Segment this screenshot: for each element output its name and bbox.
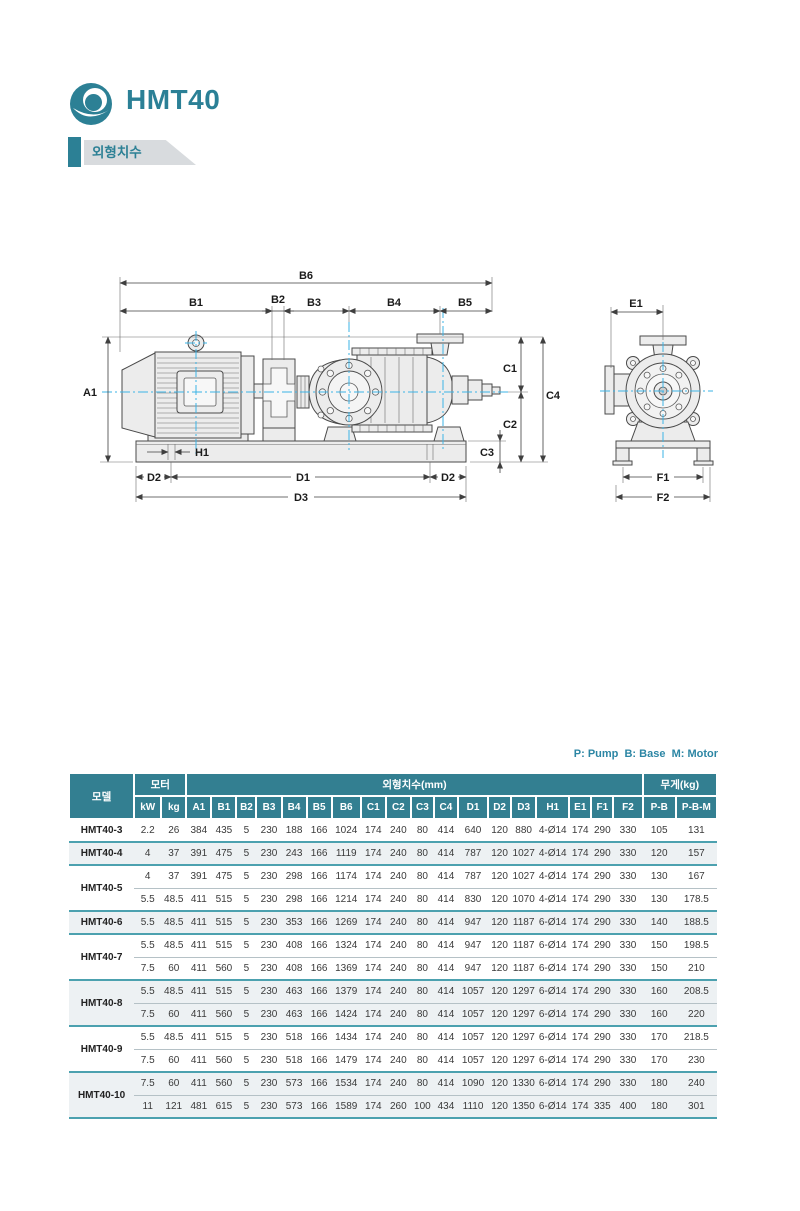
dim-label-f2: F2 bbox=[657, 492, 670, 504]
spec-cell: 391 bbox=[186, 842, 211, 865]
spec-cell: 414 bbox=[434, 934, 458, 957]
spec-cell: 5 bbox=[236, 934, 256, 957]
spec-cell: 166 bbox=[307, 911, 332, 934]
table-row: HMT40-5437391475523029816611741742408041… bbox=[69, 865, 717, 888]
dim-label-d3: D3 bbox=[294, 492, 308, 504]
spec-cell: 7.5 bbox=[134, 957, 161, 980]
spec-cell: 400 bbox=[613, 1095, 642, 1118]
spec-cell: 515 bbox=[211, 1026, 236, 1049]
spec-cell: 1090 bbox=[458, 1072, 488, 1095]
dim-label-h1: H1 bbox=[195, 447, 209, 459]
col-header: kg bbox=[161, 796, 186, 819]
spec-cell: 330 bbox=[613, 1072, 642, 1095]
table-legend: P: Pump B: Base M: Motor bbox=[68, 748, 718, 760]
spec-cell: 1534 bbox=[332, 1072, 361, 1095]
spec-cell: 1214 bbox=[332, 888, 361, 911]
spec-cell: 220 bbox=[676, 1003, 717, 1026]
spec-cell: 330 bbox=[613, 842, 642, 865]
spec-cell: 230 bbox=[256, 1072, 281, 1095]
spec-cell: 180 bbox=[643, 1095, 676, 1118]
spec-cell: 947 bbox=[458, 934, 488, 957]
spec-cell: 80 bbox=[411, 1072, 434, 1095]
spec-cell: 5 bbox=[236, 1003, 256, 1026]
spec-cell: 174 bbox=[361, 1003, 386, 1026]
dim-label-d2-right: D2 bbox=[441, 472, 455, 484]
spec-cell: 230 bbox=[256, 1049, 281, 1072]
spec-cell: 6-Ø14 bbox=[536, 957, 569, 980]
spec-cell: 174 bbox=[569, 888, 591, 911]
spec-cell: 80 bbox=[411, 957, 434, 980]
spec-cell: 1297 bbox=[511, 1003, 536, 1026]
spec-cell: 290 bbox=[591, 865, 613, 888]
model-cell: HMT40-3 bbox=[69, 819, 134, 842]
spec-cell: 6-Ø14 bbox=[536, 980, 569, 1003]
spec-cell: 174 bbox=[569, 980, 591, 1003]
col-header-motor: 모터 bbox=[134, 773, 186, 796]
spec-cell: 120 bbox=[643, 842, 676, 865]
spec-cell: 330 bbox=[613, 934, 642, 957]
table-row: 1112148161552305731661589174260100434111… bbox=[69, 1095, 717, 1118]
model-cell: HMT40-9 bbox=[69, 1026, 134, 1072]
spec-cell: 140 bbox=[643, 911, 676, 934]
spec-cell: 240 bbox=[386, 1003, 411, 1026]
spec-cell: 4 bbox=[134, 865, 161, 888]
spec-cell: 414 bbox=[434, 911, 458, 934]
spec-cell: 174 bbox=[569, 819, 591, 842]
spec-cell: 1057 bbox=[458, 1003, 488, 1026]
spec-cell: 188.5 bbox=[676, 911, 717, 934]
header-row-sub: kWkgA1B1B2B3B4B5B6C1C2C3C4D1D2D3H1E1F1F2… bbox=[69, 796, 717, 819]
spec-cell: 166 bbox=[307, 1049, 332, 1072]
spec-cell: 7.5 bbox=[134, 1049, 161, 1072]
spec-cell: 166 bbox=[307, 819, 332, 842]
spec-cell: 174 bbox=[361, 1049, 386, 1072]
spec-cell: 330 bbox=[613, 1026, 642, 1049]
spec-cell: 475 bbox=[211, 842, 236, 865]
spec-cell: 166 bbox=[307, 1003, 332, 1026]
dim-label-e1: E1 bbox=[629, 298, 642, 310]
spec-cell: 1024 bbox=[332, 819, 361, 842]
spec-cell: 60 bbox=[161, 1072, 186, 1095]
spec-cell: 5.5 bbox=[134, 911, 161, 934]
col-header: D3 bbox=[511, 796, 536, 819]
spec-cell: 166 bbox=[307, 934, 332, 957]
spec-cell: 174 bbox=[361, 934, 386, 957]
spec-cell: 120 bbox=[488, 888, 511, 911]
spec-cell: 5 bbox=[236, 1095, 256, 1118]
spec-cell: 157 bbox=[676, 842, 717, 865]
col-header: C4 bbox=[434, 796, 458, 819]
spec-cell: 48.5 bbox=[161, 1026, 186, 1049]
spec-cell: 166 bbox=[307, 980, 332, 1003]
model-cell: HMT40-4 bbox=[69, 842, 134, 865]
spec-cell: 1269 bbox=[332, 911, 361, 934]
spec-cell: 230 bbox=[256, 911, 281, 934]
spec-cell: 6-Ø14 bbox=[536, 1026, 569, 1049]
col-header-dims: 외형치수(mm) bbox=[186, 773, 642, 796]
dim-label-a1: A1 bbox=[83, 387, 97, 399]
col-header: kW bbox=[134, 796, 161, 819]
spec-cell: 167 bbox=[676, 865, 717, 888]
spec-cell: 475 bbox=[211, 865, 236, 888]
spec-cell: 290 bbox=[591, 957, 613, 980]
spec-cell: 174 bbox=[569, 1095, 591, 1118]
spec-cell: 6-Ø14 bbox=[536, 1095, 569, 1118]
col-header: B1 bbox=[211, 796, 236, 819]
spec-cell: 120 bbox=[488, 1003, 511, 1026]
model-cell: HMT40-7 bbox=[69, 934, 134, 980]
spec-cell: 166 bbox=[307, 1072, 332, 1095]
table-row: 7.56041156052304081661369174240804149471… bbox=[69, 957, 717, 980]
brand-logo-icon bbox=[68, 81, 114, 127]
spec-cell: 5 bbox=[236, 1049, 256, 1072]
coupling-guard bbox=[263, 359, 309, 441]
spec-cell: 411 bbox=[186, 1072, 211, 1095]
spec-cell: 166 bbox=[307, 842, 332, 865]
spec-cell: 80 bbox=[411, 1026, 434, 1049]
spec-cell: 105 bbox=[643, 819, 676, 842]
spec-cell: 787 bbox=[458, 865, 488, 888]
spec-cell: 166 bbox=[307, 957, 332, 980]
spec-cell: 830 bbox=[458, 888, 488, 911]
spec-cell: 230 bbox=[256, 1095, 281, 1118]
spec-cell: 120 bbox=[488, 865, 511, 888]
spec-cell: 198.5 bbox=[676, 934, 717, 957]
dim-label-b4: B4 bbox=[387, 297, 402, 309]
spec-cell: 1297 bbox=[511, 1049, 536, 1072]
spec-cell: 174 bbox=[361, 980, 386, 1003]
spec-cell: 230 bbox=[256, 957, 281, 980]
spec-cell: 80 bbox=[411, 911, 434, 934]
spec-cell: 178.5 bbox=[676, 888, 717, 911]
spec-cell: 560 bbox=[211, 1072, 236, 1095]
spec-cell: 290 bbox=[591, 842, 613, 865]
spec-cell: 481 bbox=[186, 1095, 211, 1118]
spec-cell: 11 bbox=[134, 1095, 161, 1118]
spec-cell: 174 bbox=[361, 1095, 386, 1118]
spec-cell: 947 bbox=[458, 911, 488, 934]
spec-cell: 330 bbox=[613, 865, 642, 888]
table-row: HMT40-4437391475523024316611191742408041… bbox=[69, 842, 717, 865]
col-header-weight: 무게(kg) bbox=[643, 773, 717, 796]
spec-cell: 174 bbox=[361, 842, 386, 865]
spec-cell: 5.5 bbox=[134, 980, 161, 1003]
spec-cell: 560 bbox=[211, 1003, 236, 1026]
dim-label-b1: B1 bbox=[189, 297, 203, 309]
discharge-flange bbox=[417, 334, 463, 343]
spec-cell: 515 bbox=[211, 888, 236, 911]
spec-cell: 6-Ø14 bbox=[536, 1049, 569, 1072]
spec-cell: 411 bbox=[186, 1003, 211, 1026]
spec-cell: 174 bbox=[569, 865, 591, 888]
spec-cell: 120 bbox=[488, 1049, 511, 1072]
spec-cell: 414 bbox=[434, 865, 458, 888]
spec-cell: 174 bbox=[361, 888, 386, 911]
spec-cell: 330 bbox=[613, 888, 642, 911]
spec-cell: 560 bbox=[211, 957, 236, 980]
spec-cell: 60 bbox=[161, 957, 186, 980]
spec-cell: 330 bbox=[613, 1049, 642, 1072]
spec-cell: 180 bbox=[643, 1072, 676, 1095]
spec-cell: 240 bbox=[676, 1072, 717, 1095]
spec-cell: 1324 bbox=[332, 934, 361, 957]
section-badge-bar bbox=[68, 137, 81, 167]
spec-cell: 560 bbox=[211, 1049, 236, 1072]
spec-cell: 1187 bbox=[511, 911, 536, 934]
spec-cell: 120 bbox=[488, 1095, 511, 1118]
spec-cell: 174 bbox=[569, 842, 591, 865]
spec-cell: 1297 bbox=[511, 1026, 536, 1049]
spec-cell: 174 bbox=[569, 1072, 591, 1095]
spec-cell: 298 bbox=[282, 865, 307, 888]
table-header: 모델모터외형치수(mm)무게(kg)kWkgA1B1B2B3B4B5B6C1C2… bbox=[69, 773, 717, 819]
spec-cell: 573 bbox=[282, 1095, 307, 1118]
spec-cell: 240 bbox=[386, 1049, 411, 1072]
spec-cell: 80 bbox=[411, 980, 434, 1003]
spec-cell: 1174 bbox=[332, 865, 361, 888]
spec-cell: 80 bbox=[411, 888, 434, 911]
spec-cell: 411 bbox=[186, 934, 211, 957]
spec-cell: 130 bbox=[643, 865, 676, 888]
spec-cell: 240 bbox=[386, 865, 411, 888]
spec-cell: 240 bbox=[386, 1072, 411, 1095]
spec-cell: 6-Ø14 bbox=[536, 911, 569, 934]
spec-cell: 7.5 bbox=[134, 1072, 161, 1095]
spec-cell: 174 bbox=[361, 911, 386, 934]
spec-cell: 240 bbox=[386, 911, 411, 934]
spec-cell: 120 bbox=[488, 957, 511, 980]
spec-cell: 640 bbox=[458, 819, 488, 842]
col-header: A1 bbox=[186, 796, 211, 819]
table-row: 7.56041156052304631661424174240804141057… bbox=[69, 1003, 717, 1026]
spec-cell: 414 bbox=[434, 842, 458, 865]
spec-cell: 210 bbox=[676, 957, 717, 980]
page-title: HMT40 bbox=[126, 84, 220, 116]
col-header: B5 bbox=[307, 796, 332, 819]
spec-cell: 240 bbox=[386, 957, 411, 980]
spec-cell: 330 bbox=[613, 1003, 642, 1026]
spec-cell: 240 bbox=[386, 888, 411, 911]
spec-cell: 174 bbox=[361, 1026, 386, 1049]
spec-cell: 230 bbox=[256, 819, 281, 842]
spec-cell: 414 bbox=[434, 957, 458, 980]
spec-cell: 1589 bbox=[332, 1095, 361, 1118]
spec-cell: 166 bbox=[307, 888, 332, 911]
spec-cell: 240 bbox=[386, 934, 411, 957]
spec-cell: 174 bbox=[569, 934, 591, 957]
col-header: C1 bbox=[361, 796, 386, 819]
table-body: HMT40-32.2263844355230188166102417424080… bbox=[69, 819, 717, 1118]
spec-cell: 1057 bbox=[458, 1026, 488, 1049]
spec-cell: 1379 bbox=[332, 980, 361, 1003]
spec-cell: 230 bbox=[256, 888, 281, 911]
base-plate bbox=[136, 441, 466, 462]
spec-cell: 5.5 bbox=[134, 888, 161, 911]
spec-cell: 1027 bbox=[511, 842, 536, 865]
spec-cell: 1027 bbox=[511, 865, 536, 888]
spec-cell: 408 bbox=[282, 957, 307, 980]
spec-cell: 880 bbox=[511, 819, 536, 842]
spec-cell: 80 bbox=[411, 865, 434, 888]
spec-cell: 290 bbox=[591, 934, 613, 957]
spec-cell: 131 bbox=[676, 819, 717, 842]
col-header: P-B bbox=[643, 796, 676, 819]
spec-cell: 515 bbox=[211, 980, 236, 1003]
col-header: H1 bbox=[536, 796, 569, 819]
table-row: HMT40-32.2263844355230188166102417424080… bbox=[69, 819, 717, 842]
spec-cell: 463 bbox=[282, 980, 307, 1003]
spec-cell: 414 bbox=[434, 819, 458, 842]
spec-cell: 243 bbox=[282, 842, 307, 865]
spec-cell: 411 bbox=[186, 1049, 211, 1072]
spec-cell: 7.5 bbox=[134, 1003, 161, 1026]
spec-cell: 411 bbox=[186, 888, 211, 911]
col-header: D2 bbox=[488, 796, 511, 819]
spec-cell: 1070 bbox=[511, 888, 536, 911]
spec-table: 모델모터외형치수(mm)무게(kg)kWkgA1B1B2B3B4B5B6C1C2… bbox=[68, 772, 718, 1119]
spec-cell: 298 bbox=[282, 888, 307, 911]
spec-cell: 120 bbox=[488, 842, 511, 865]
spec-cell: 411 bbox=[186, 911, 211, 934]
spec-cell: 121 bbox=[161, 1095, 186, 1118]
col-header: B4 bbox=[282, 796, 307, 819]
spec-cell: 160 bbox=[643, 1003, 676, 1026]
dim-label-c2: C2 bbox=[503, 419, 517, 431]
spec-cell: 290 bbox=[591, 1026, 613, 1049]
spec-cell: 5 bbox=[236, 819, 256, 842]
spec-cell: 230 bbox=[256, 980, 281, 1003]
spec-cell: 80 bbox=[411, 1049, 434, 1072]
col-header: D1 bbox=[458, 796, 488, 819]
spec-cell: 6-Ø14 bbox=[536, 1072, 569, 1095]
spec-cell: 188 bbox=[282, 819, 307, 842]
spec-cell: 240 bbox=[386, 1026, 411, 1049]
header-row-groups: 모델모터외형치수(mm)무게(kg) bbox=[69, 773, 717, 796]
spec-cell: 120 bbox=[488, 911, 511, 934]
col-header: B3 bbox=[256, 796, 281, 819]
dim-label-b5: B5 bbox=[458, 297, 472, 309]
spec-cell: 330 bbox=[613, 980, 642, 1003]
spec-cell: 391 bbox=[186, 865, 211, 888]
spec-cell: 5.5 bbox=[134, 1026, 161, 1049]
spec-cell: 435 bbox=[211, 819, 236, 842]
spec-cell: 230 bbox=[256, 934, 281, 957]
spec-cell: 1434 bbox=[332, 1026, 361, 1049]
spec-cell: 208.5 bbox=[676, 980, 717, 1003]
spec-cell: 411 bbox=[186, 980, 211, 1003]
col-header: B2 bbox=[236, 796, 256, 819]
spec-cell: 1369 bbox=[332, 957, 361, 980]
spec-cell: 411 bbox=[186, 957, 211, 980]
col-header: C2 bbox=[386, 796, 411, 819]
spec-cell: 37 bbox=[161, 842, 186, 865]
spec-cell: 384 bbox=[186, 819, 211, 842]
spec-cell: 330 bbox=[613, 911, 642, 934]
col-header: F1 bbox=[591, 796, 613, 819]
spec-cell: 787 bbox=[458, 842, 488, 865]
spec-cell: 5 bbox=[236, 888, 256, 911]
spec-cell: 463 bbox=[282, 1003, 307, 1026]
spec-cell: 1330 bbox=[511, 1072, 536, 1095]
spec-cell: 5 bbox=[236, 1072, 256, 1095]
spec-cell: 414 bbox=[434, 1049, 458, 1072]
model-cell: HMT40-5 bbox=[69, 865, 134, 911]
spec-cell: 414 bbox=[434, 980, 458, 1003]
spec-cell: 290 bbox=[591, 819, 613, 842]
dim-label-c1: C1 bbox=[503, 363, 517, 375]
spec-cell: 80 bbox=[411, 819, 434, 842]
spec-cell: 1350 bbox=[511, 1095, 536, 1118]
spec-cell: 230 bbox=[256, 1026, 281, 1049]
table-row: HMT40-85.548.541151552304631661379174240… bbox=[69, 980, 717, 1003]
spec-cell: 335 bbox=[591, 1095, 613, 1118]
spec-table-wrapper: 모델모터외형치수(mm)무게(kg)kWkgA1B1B2B3B4B5B6C1C2… bbox=[68, 772, 718, 1119]
dimension-drawing: B6 B1 B2 B3 B4 B5 A1 C1 C2 C4 C3 H1 bbox=[80, 262, 760, 510]
spec-cell: 166 bbox=[307, 1026, 332, 1049]
pump-front-view bbox=[605, 336, 713, 465]
spec-cell: 240 bbox=[386, 980, 411, 1003]
spec-cell: 174 bbox=[569, 1026, 591, 1049]
spec-cell: 174 bbox=[361, 957, 386, 980]
dim-label-f1: F1 bbox=[657, 472, 670, 484]
spec-cell: 120 bbox=[488, 980, 511, 1003]
model-cell: HMT40-8 bbox=[69, 980, 134, 1026]
spec-cell: 174 bbox=[361, 1072, 386, 1095]
spec-cell: 230 bbox=[256, 1003, 281, 1026]
col-header: F2 bbox=[613, 796, 642, 819]
spec-cell: 230 bbox=[676, 1049, 717, 1072]
spec-cell: 166 bbox=[307, 1095, 332, 1118]
spec-cell: 5 bbox=[236, 980, 256, 1003]
spec-cell: 290 bbox=[591, 888, 613, 911]
dim-label-c4: C4 bbox=[546, 390, 561, 402]
table-row: HMT40-95.548.541151552305181661434174240… bbox=[69, 1026, 717, 1049]
spec-cell: 518 bbox=[282, 1026, 307, 1049]
spec-cell: 4-Ø14 bbox=[536, 865, 569, 888]
spec-cell: 290 bbox=[591, 911, 613, 934]
motor-side-view bbox=[122, 335, 263, 441]
spec-cell: 2.2 bbox=[134, 819, 161, 842]
spec-cell: 1297 bbox=[511, 980, 536, 1003]
section-label: 외형치수 bbox=[92, 140, 142, 165]
spec-cell: 240 bbox=[386, 819, 411, 842]
spec-cell: 5 bbox=[236, 1026, 256, 1049]
spec-cell: 150 bbox=[643, 934, 676, 957]
spec-cell: 174 bbox=[569, 1003, 591, 1026]
spec-cell: 4-Ø14 bbox=[536, 819, 569, 842]
spec-cell: 100 bbox=[411, 1095, 434, 1118]
col-header: B6 bbox=[332, 796, 361, 819]
spec-cell: 1424 bbox=[332, 1003, 361, 1026]
spec-cell: 1479 bbox=[332, 1049, 361, 1072]
table-row: 5.548.5411515523029816612141742408041483… bbox=[69, 888, 717, 911]
spec-cell: 515 bbox=[211, 934, 236, 957]
spec-cell: 80 bbox=[411, 842, 434, 865]
spec-cell: 414 bbox=[434, 888, 458, 911]
col-header-model: 모델 bbox=[69, 773, 134, 819]
spec-cell: 230 bbox=[256, 865, 281, 888]
spec-cell: 48.5 bbox=[161, 934, 186, 957]
spec-cell: 174 bbox=[361, 865, 386, 888]
spec-cell: 218.5 bbox=[676, 1026, 717, 1049]
spec-cell: 60 bbox=[161, 1003, 186, 1026]
spec-cell: 240 bbox=[386, 842, 411, 865]
spec-cell: 5 bbox=[236, 957, 256, 980]
col-header: P-B-M bbox=[676, 796, 717, 819]
spec-cell: 434 bbox=[434, 1095, 458, 1118]
spec-cell: 48.5 bbox=[161, 911, 186, 934]
dim-label-b3: B3 bbox=[307, 297, 321, 309]
